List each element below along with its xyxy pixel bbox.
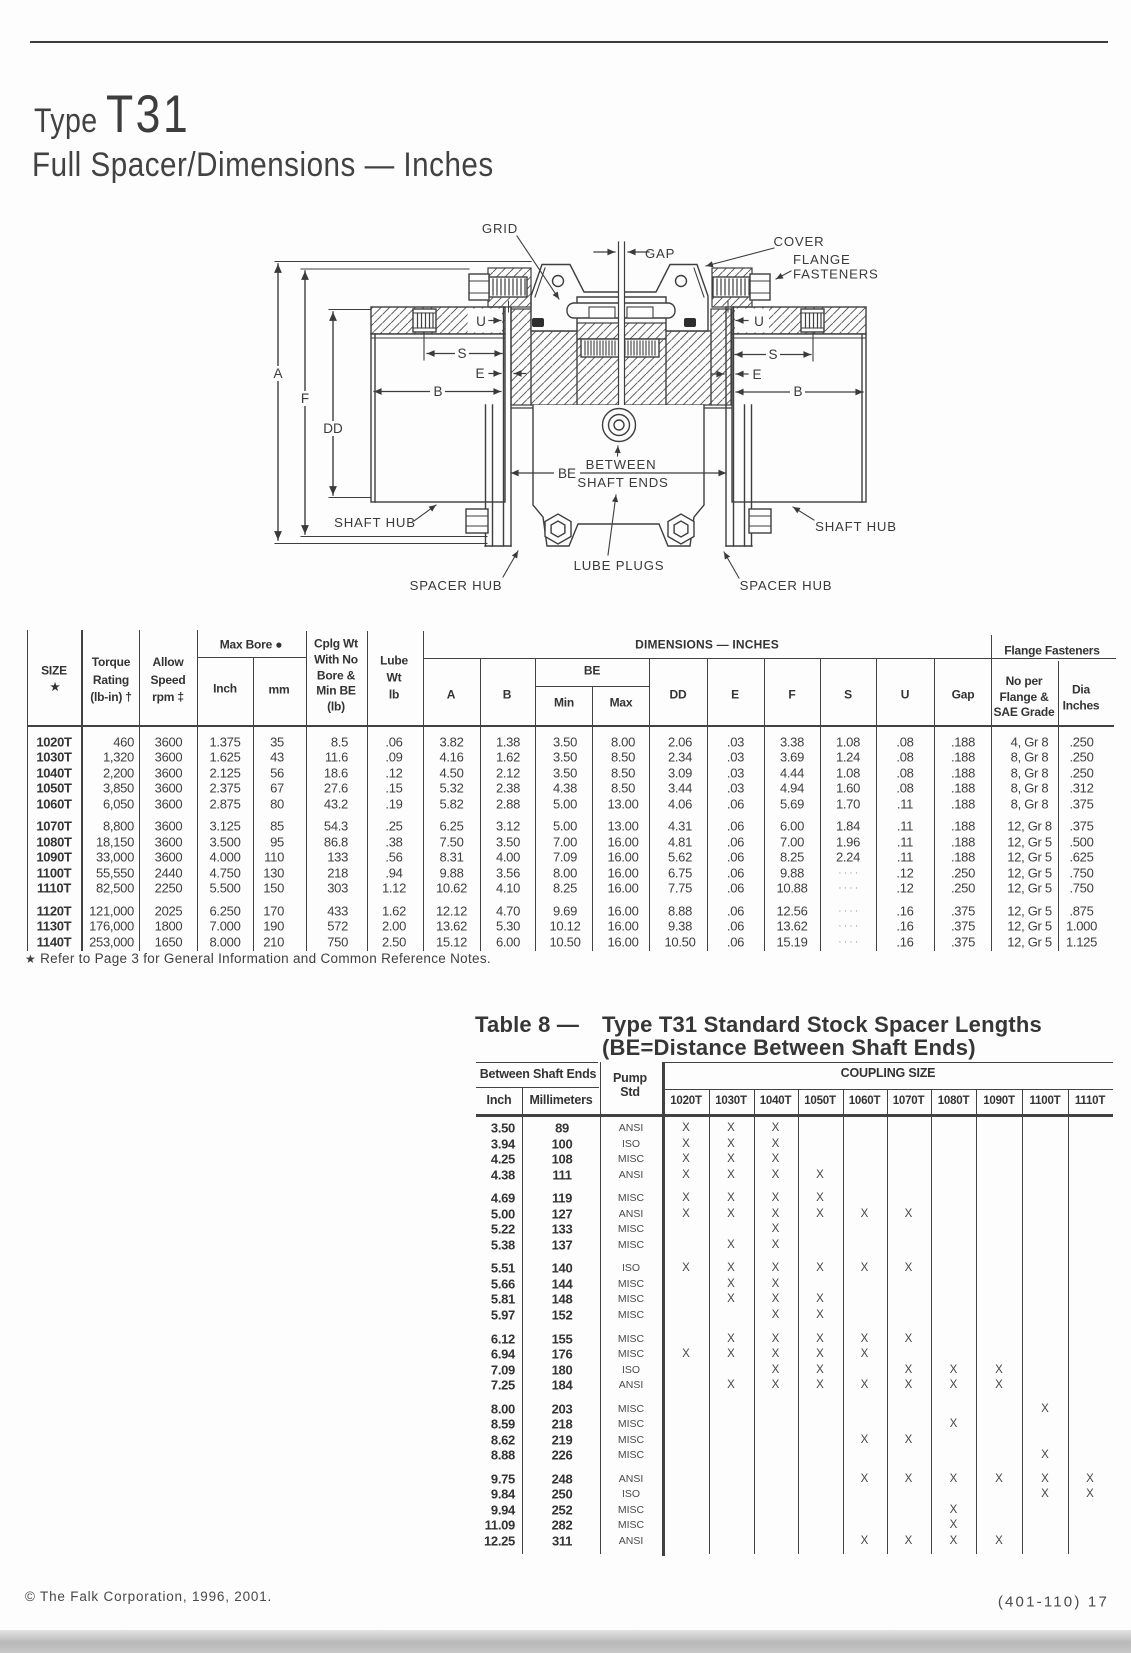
svg-text:BE: BE bbox=[558, 466, 576, 481]
svg-text:S: S bbox=[457, 346, 466, 361]
svg-text:SHAFT HUB: SHAFT HUB bbox=[334, 515, 416, 530]
svg-text:S: S bbox=[768, 347, 777, 362]
svg-text:LUBE PLUGS: LUBE PLUGS bbox=[574, 558, 665, 573]
svg-text:SHAFT HUB: SHAFT HUB bbox=[815, 519, 897, 534]
svg-text:SPACER HUB: SPACER HUB bbox=[410, 578, 503, 593]
svg-text:BETWEEN: BETWEEN bbox=[586, 457, 657, 472]
svg-text:FASTENERS: FASTENERS bbox=[793, 267, 879, 282]
svg-text:COVER: COVER bbox=[774, 234, 825, 249]
svg-text:B: B bbox=[433, 384, 442, 399]
svg-text:SPACER HUB: SPACER HUB bbox=[740, 578, 833, 593]
svg-text:E: E bbox=[475, 366, 484, 381]
svg-text:A: A bbox=[273, 366, 282, 381]
svg-text:DD: DD bbox=[323, 421, 343, 436]
svg-text:F: F bbox=[301, 391, 309, 406]
svg-text:U: U bbox=[476, 314, 486, 329]
svg-text:E: E bbox=[752, 367, 761, 382]
svg-text:GAP: GAP bbox=[645, 246, 675, 261]
svg-text:B: B bbox=[793, 384, 802, 399]
svg-text:U: U bbox=[754, 314, 764, 329]
svg-text:FLANGE: FLANGE bbox=[793, 252, 851, 267]
svg-text:GRID: GRID bbox=[482, 221, 518, 236]
svg-text:SHAFT ENDS: SHAFT ENDS bbox=[577, 475, 668, 490]
